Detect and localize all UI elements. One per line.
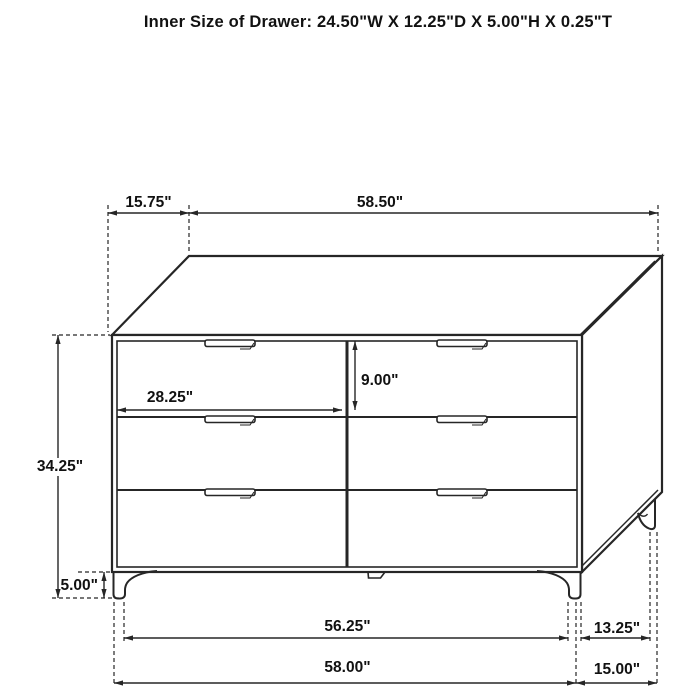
dresser-top-face [112,256,662,335]
dimension-diagram: Inner Size of Drawer: 24.50"W X 12.25"D … [0,0,700,700]
dim-label-drawer-front-height: 9.00" [361,372,399,390]
dim-label-leg-span-width: 56.25" [300,618,395,636]
page-title: Inner Size of Drawer: 24.50"W X 12.25"D … [56,13,700,32]
dim-label-drawer-front-width: 28.25" [125,389,215,407]
front-left-leg [114,571,158,599]
dresser-carcass [112,256,662,572]
dim-label-base-width: 58.00" [300,659,395,677]
dim-label-leg-span-depth: 13.25" [574,620,660,638]
dresser-line-drawing [0,0,700,700]
dim-label-base-depth: 15.00" [574,661,660,679]
dim-label-leg-height: 5.00" [38,577,98,595]
dim-label-top-depth: 15.75" [108,194,189,212]
dim-label-top-width: 58.50" [330,194,430,212]
dim-label-overall-height: 34.25" [21,458,99,476]
front-right-leg [537,571,581,599]
